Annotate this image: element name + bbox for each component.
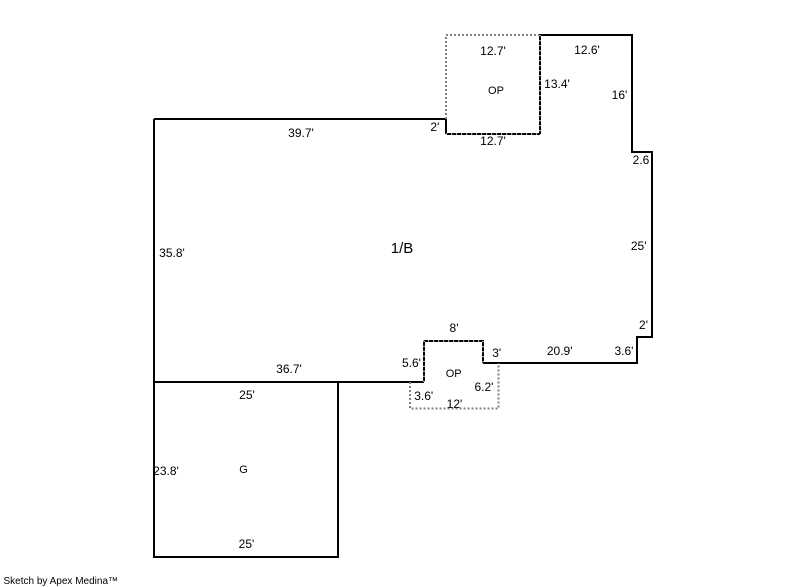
svg-text:25': 25' [239, 537, 255, 551]
svg-text:3': 3' [492, 346, 501, 360]
svg-text:20.9': 20.9' [547, 344, 573, 358]
svg-text:35.8': 35.8' [159, 246, 185, 260]
svg-text:2': 2' [430, 120, 439, 134]
svg-text:12.7': 12.7' [480, 134, 506, 148]
svg-text:23.8': 23.8' [153, 464, 179, 478]
svg-text:OP: OP [446, 368, 462, 380]
svg-text:6.2': 6.2' [475, 380, 494, 394]
svg-text:39.7': 39.7' [288, 126, 314, 140]
svg-text:5.6': 5.6' [402, 356, 421, 370]
svg-text:12.6': 12.6' [574, 43, 600, 57]
svg-text:8': 8' [450, 321, 459, 335]
svg-text:25': 25' [631, 239, 647, 253]
svg-text:13.4': 13.4' [544, 77, 570, 91]
svg-text:3.6': 3.6' [414, 389, 433, 403]
svg-text:G: G [239, 464, 248, 476]
svg-text:2': 2' [639, 318, 648, 332]
svg-text:16': 16' [612, 88, 628, 102]
svg-text:2.6: 2.6 [633, 153, 650, 167]
svg-text:12.7': 12.7' [480, 44, 506, 58]
svg-text:12': 12' [447, 397, 463, 411]
svg-text:1/B: 1/B [391, 240, 414, 257]
svg-text:36.7': 36.7' [276, 362, 302, 376]
svg-text:3.6': 3.6' [615, 344, 634, 358]
svg-text:25': 25' [239, 388, 255, 402]
svg-text:Sketch by Apex Medina™: Sketch by Apex Medina™ [4, 576, 119, 587]
svg-text:OP: OP [488, 85, 504, 97]
